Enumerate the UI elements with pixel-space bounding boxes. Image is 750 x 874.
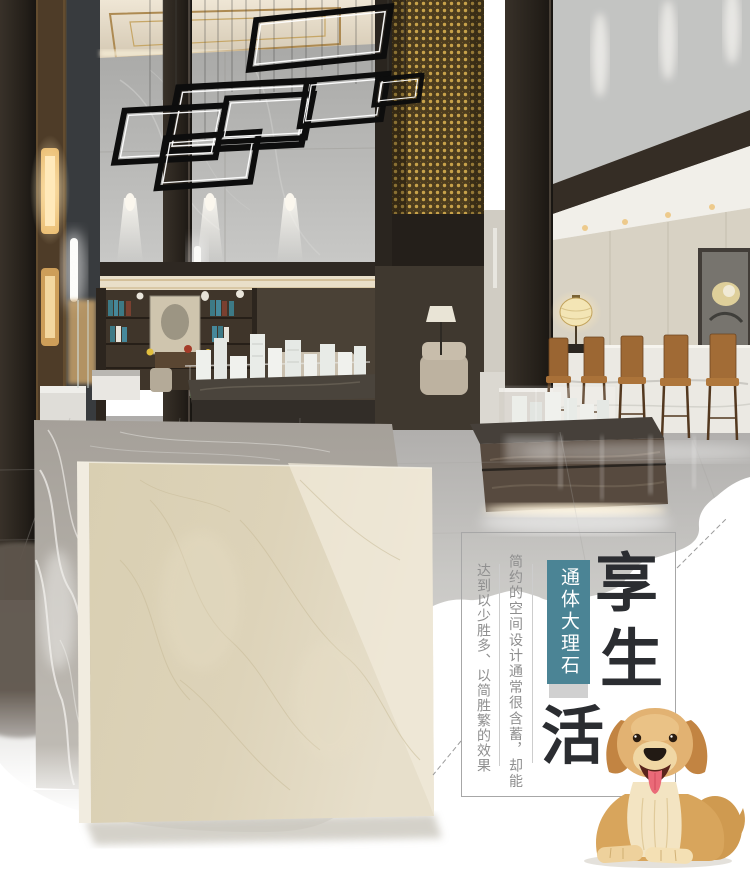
gold-mesh-screen [375,0,559,435]
yellow-flowers [147,349,154,356]
tile-samples [0,420,442,845]
slogan-char-1: 享 [595,553,658,616]
armchair [150,368,172,392]
product-badge-base [549,684,588,698]
dog-paw [645,847,694,864]
dog-eye [669,734,677,742]
bar-zone [546,0,750,440]
armchair [420,355,468,395]
golden-retriever-dog [573,698,750,874]
tile-sample-cream [77,462,434,823]
product-badge: 通体大理石 [547,560,590,684]
slogan-char-2: 生 [600,629,663,692]
tile-edge [77,462,91,823]
tile-poster: 达到以少胜多、以简胜繁的效果 简约的空间设计通常很含蓄，却能 通体大理石 享 生… [0,0,750,874]
product-badge-label: 通体大理石 [559,567,578,677]
table-lamp [426,306,456,322]
dog-eye [633,734,641,742]
caption-left: 达到以少胜多、以简胜繁的效果 [473,563,495,778]
caption-right: 简约的空间设计通常很含蓄，却能 [505,554,527,794]
divider-line [532,564,533,763]
divider-line [499,564,500,766]
dog-paw [596,844,643,863]
main-column [505,0,553,390]
backlit-art-panel [68,300,96,384]
